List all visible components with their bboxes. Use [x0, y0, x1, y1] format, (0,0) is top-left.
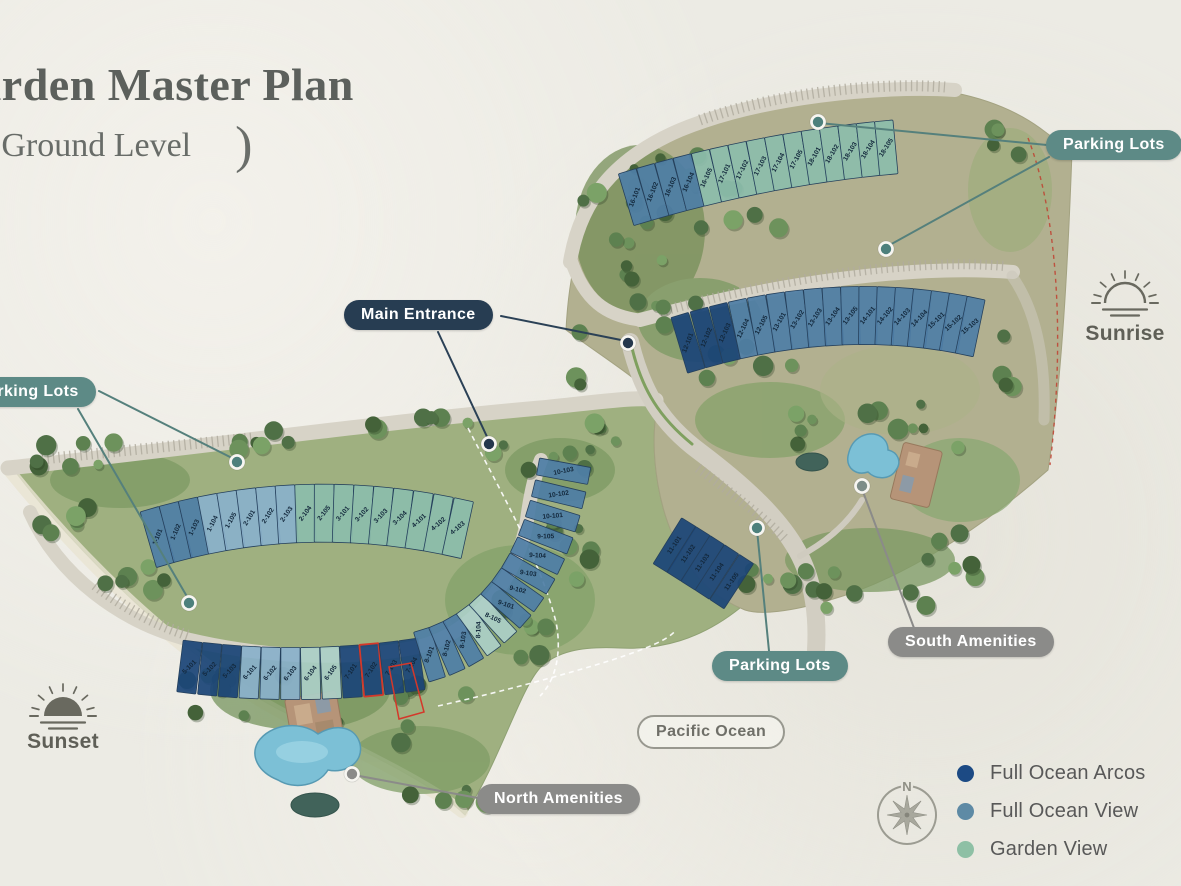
main-entrance-pill[interactable]: Main Entrance [344, 300, 493, 330]
legend-item-label: Full Ocean View [990, 800, 1138, 823]
arcos-legend-dot-icon [957, 765, 974, 782]
parking-lots-label: Parking Lots [729, 657, 831, 674]
south-amenities-label: South Amenities [905, 633, 1037, 650]
parking-lots-label: Parking Lots [1063, 136, 1165, 153]
legend-item-label: Garden View [990, 838, 1107, 861]
legend-item-arcos: Full Ocean Arcos [957, 762, 1146, 785]
pacific-ocean-label: Pacific Ocean [656, 723, 766, 740]
unit-label: 9-105 [537, 533, 554, 540]
south-pond [796, 453, 828, 471]
parking-marker-ne-1[interactable] [810, 114, 826, 130]
parking-lots-label: Parking Lots [0, 383, 79, 400]
south-amenities-marker[interactable] [854, 478, 870, 494]
south-amenities-pill[interactable]: South Amenities [888, 627, 1054, 657]
unit-2-105[interactable]: 2-105 [314, 484, 334, 542]
sunset-icon [30, 684, 96, 729]
north-amenities-pill[interactable]: North Amenities [477, 784, 640, 814]
subtitle-close-paren: ) [235, 125, 252, 167]
parking-marker-mid[interactable] [749, 520, 765, 536]
subtitle-text: Ground Level [1, 127, 191, 165]
unit-6-104[interactable]: 6-104 [300, 647, 320, 699]
sunrise-label: Sunrise [1070, 322, 1180, 346]
parking-lots-pill-mid[interactable]: Parking Lots [712, 651, 848, 681]
unit-2-104[interactable]: 2-104 [295, 484, 316, 543]
legend-item-garden: Garden View [957, 838, 1146, 861]
compass-rose-icon: N [878, 779, 936, 844]
unit-6-105[interactable]: 6-105 [320, 646, 342, 699]
unit-14-101[interactable]: 14-101 [859, 287, 878, 345]
pool-highlight [276, 741, 328, 763]
entrance-marker-west[interactable] [481, 436, 497, 452]
main-entrance-label: Main Entrance [361, 306, 476, 323]
sunrise-icon [1092, 271, 1158, 316]
unit-6-102[interactable]: 6-102 [260, 647, 281, 700]
compass-north-label: N [902, 779, 911, 794]
legend-item-label: Full Ocean Arcos [990, 762, 1146, 785]
unit-label: 9-104 [529, 552, 547, 560]
parking-lots-pill-left[interactable]: Parking Lots [0, 377, 96, 407]
unit-6-101[interactable]: 6-101 [239, 646, 261, 699]
title-block: Garden Master Plan ( Ground Level ) [0, 58, 354, 167]
unit-6-103[interactable]: 6-103 [281, 647, 300, 699]
legend: Full Ocean ArcosFull Ocean ViewGarden Vi… [957, 762, 1146, 876]
garden-legend-dot-icon [957, 841, 974, 858]
unit-13-105[interactable]: 13-105 [841, 286, 861, 344]
north-pond [291, 793, 339, 817]
parking-marker-w-2[interactable] [181, 595, 197, 611]
unit-5-103[interactable]: 5-103 [218, 644, 241, 697]
parking-marker-w-1[interactable] [229, 454, 245, 470]
unit-7-101[interactable]: 7-101 [340, 645, 363, 698]
master-plan-page: { "title": "Garden Master Plan", "subtit… [0, 0, 1181, 886]
sunset-label: Sunset [8, 730, 118, 754]
view-legend-dot-icon [957, 803, 974, 820]
legend-item-view: Full Ocean View [957, 800, 1146, 823]
north-amenities-marker[interactable] [344, 766, 360, 782]
north-amenities-label: North Amenities [494, 790, 623, 807]
unit-label: 8-104 [475, 621, 482, 638]
parking-lots-pill-top-right[interactable]: Parking Lots [1046, 130, 1181, 160]
pacific-ocean-pill: Pacific Ocean [637, 715, 785, 749]
page-subtitle: ( Ground Level ) [0, 125, 354, 167]
main-entrance-marker[interactable] [620, 335, 636, 351]
page-title: Garden Master Plan [0, 58, 354, 111]
parking-marker-ne-2[interactable] [878, 241, 894, 257]
